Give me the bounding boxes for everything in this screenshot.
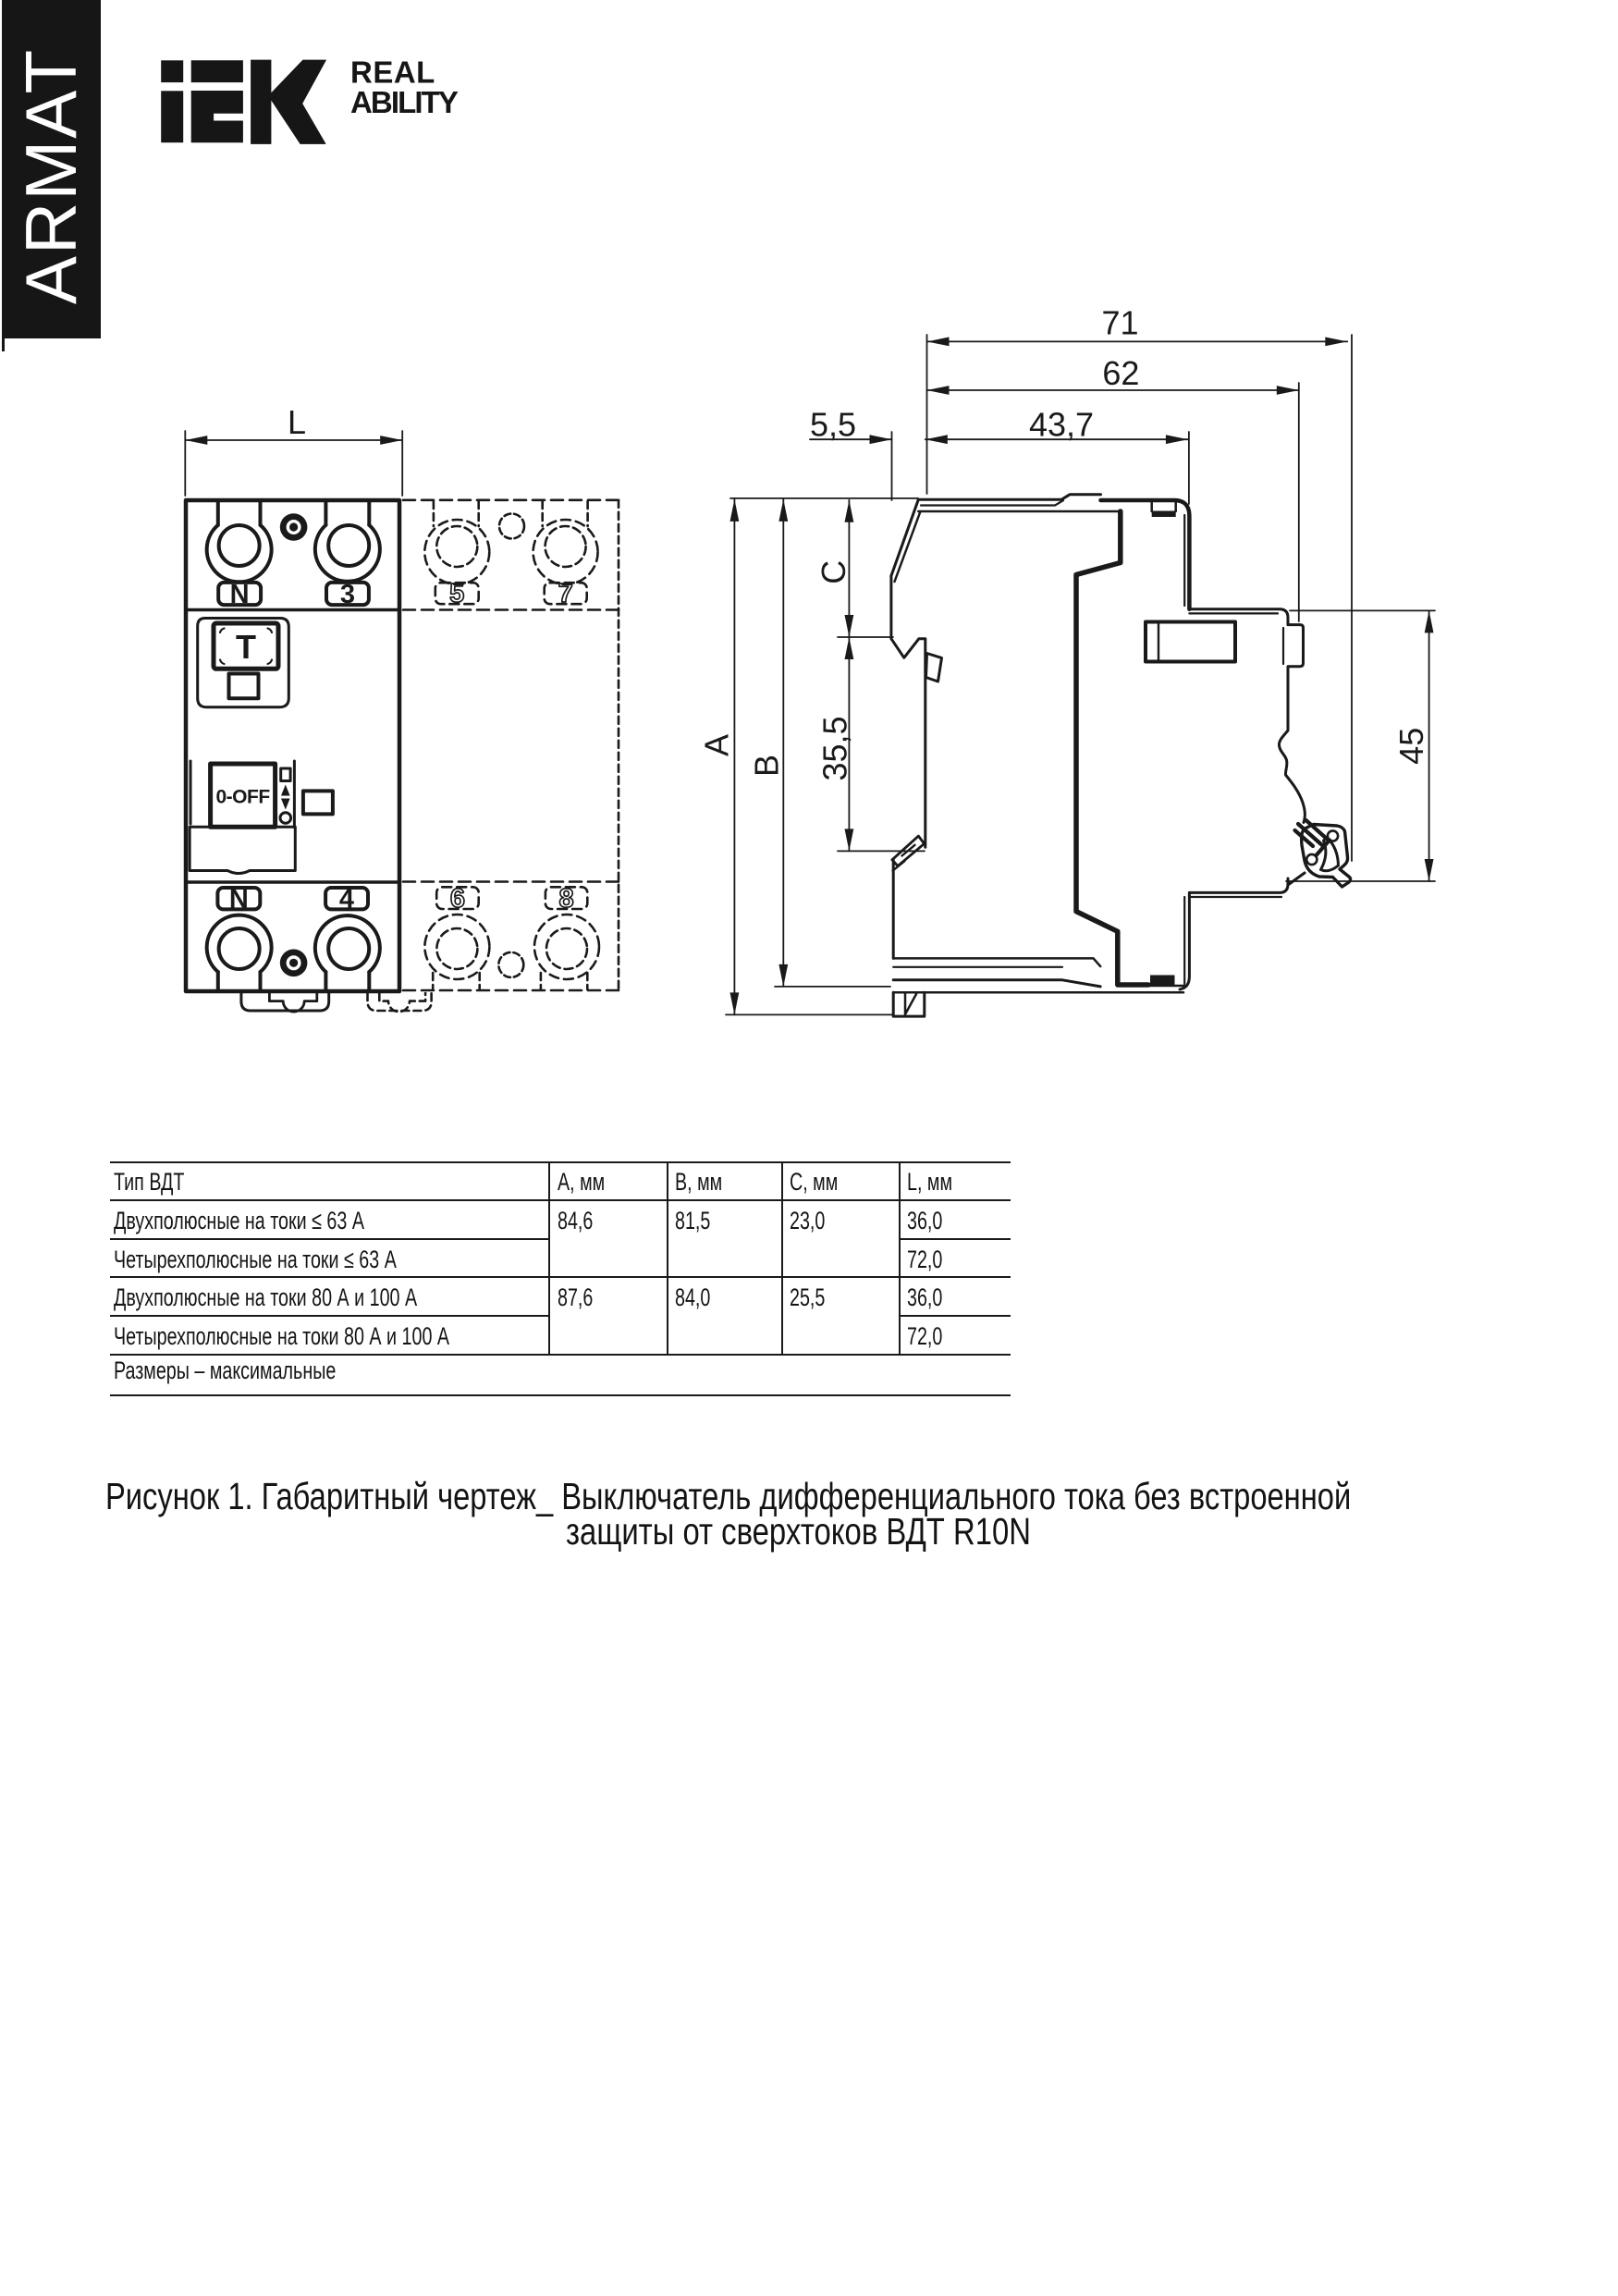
svg-text:6: 6 (450, 884, 465, 914)
svg-text:35,5: 35,5 (816, 716, 854, 780)
svg-text:5: 5 (449, 579, 464, 608)
svg-text:62: 62 (1102, 354, 1139, 392)
svg-text:7: 7 (558, 579, 573, 608)
svg-text:45: 45 (1392, 728, 1430, 765)
svg-text:A: A (697, 734, 735, 756)
svg-text:8: 8 (559, 884, 574, 914)
svg-text:71: 71 (1101, 304, 1138, 342)
svg-text:B: B (748, 755, 786, 777)
svg-text:N: N (230, 580, 250, 609)
svg-text:L: L (288, 403, 306, 441)
svg-text:0-OFF: 0-OFF (216, 787, 271, 808)
svg-text:5,5: 5,5 (810, 405, 856, 443)
svg-text:43,7: 43,7 (1029, 405, 1094, 443)
svg-text:C: C (815, 560, 852, 584)
svg-text:3: 3 (340, 580, 355, 609)
svg-text:T: T (236, 628, 256, 666)
svg-text:N: N (229, 884, 249, 914)
svg-text:4: 4 (339, 884, 354, 914)
